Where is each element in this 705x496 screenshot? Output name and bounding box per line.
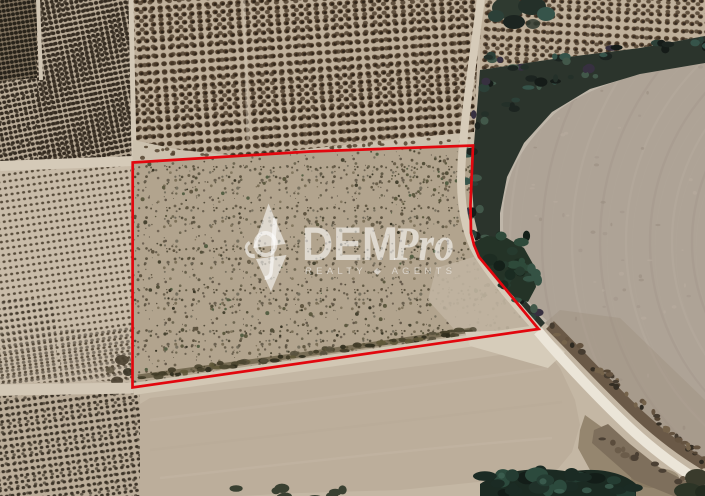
svg-text:Pro: Pro [393, 218, 454, 271]
svg-text:DEM: DEM [302, 217, 398, 270]
svg-text:REALTY ◆ AGENTS: REALTY ◆ AGENTS [305, 266, 452, 277]
